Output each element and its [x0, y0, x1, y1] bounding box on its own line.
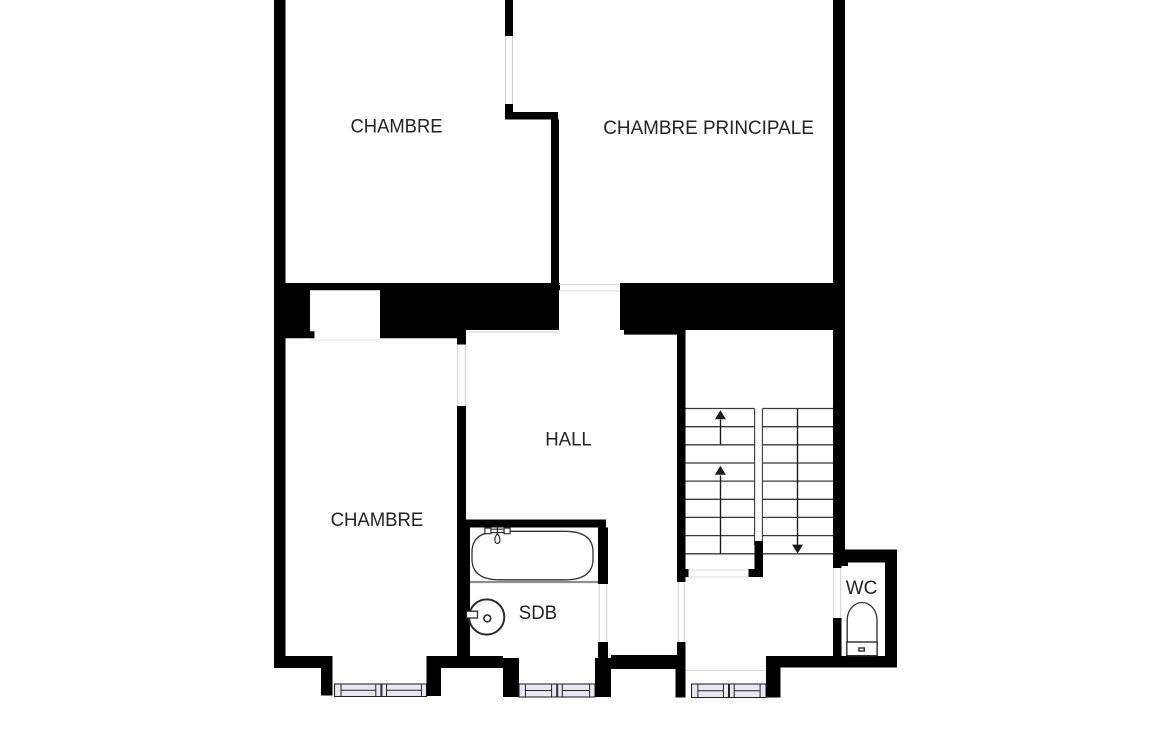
svg-text:HALL: HALL	[545, 429, 592, 450]
svg-text:WC: WC	[846, 578, 878, 599]
svg-text:CHAMBRE: CHAMBRE	[351, 116, 443, 137]
svg-text:CHAMBRE: CHAMBRE	[331, 510, 424, 531]
svg-text:CHAMBRE PRINCIPALE: CHAMBRE PRINCIPALE	[603, 118, 814, 139]
svg-text:SDB: SDB	[519, 603, 557, 624]
